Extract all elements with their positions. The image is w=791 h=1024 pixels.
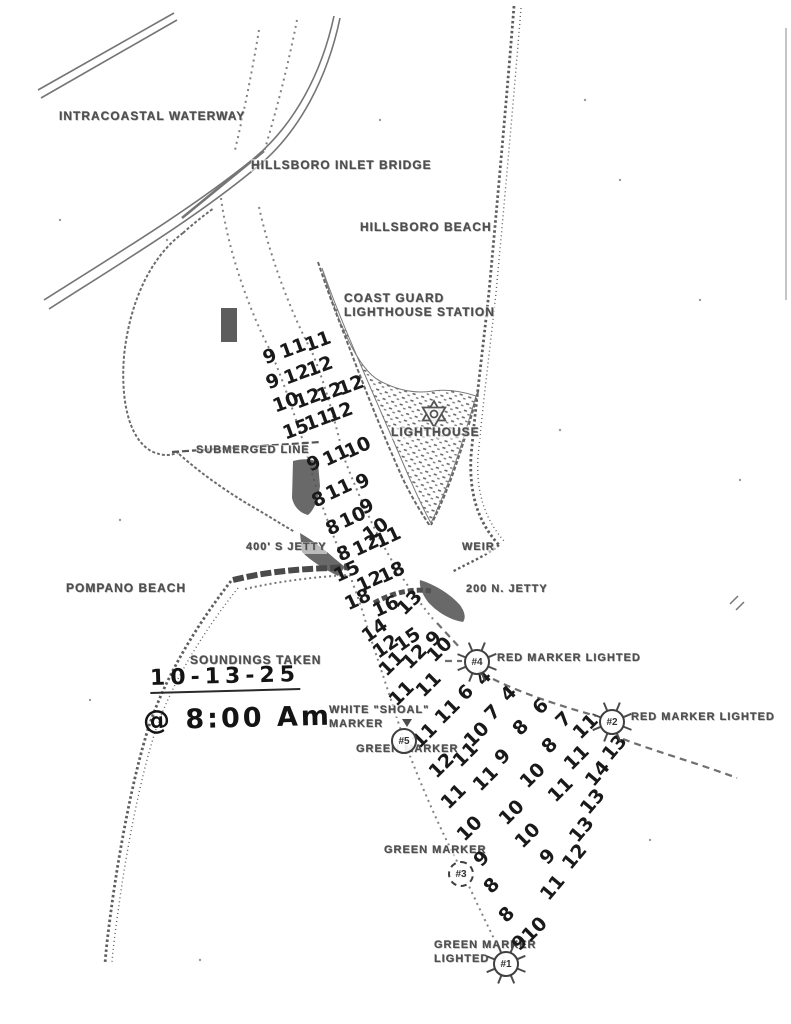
marker-number: #3 [448, 861, 474, 887]
marker-number: #2 [599, 709, 625, 735]
nautical-chart: INTRACOASTAL WATERWAYHILLSBORO INLET BRI… [0, 0, 791, 1024]
marker-flag-icon [402, 719, 412, 727]
marker-number: #5 [391, 728, 417, 754]
marker-number: #4 [464, 649, 490, 675]
marker-number: #1 [493, 951, 519, 977]
buoy-markers-layer: #4#2#5#3#1 [0, 0, 791, 1024]
